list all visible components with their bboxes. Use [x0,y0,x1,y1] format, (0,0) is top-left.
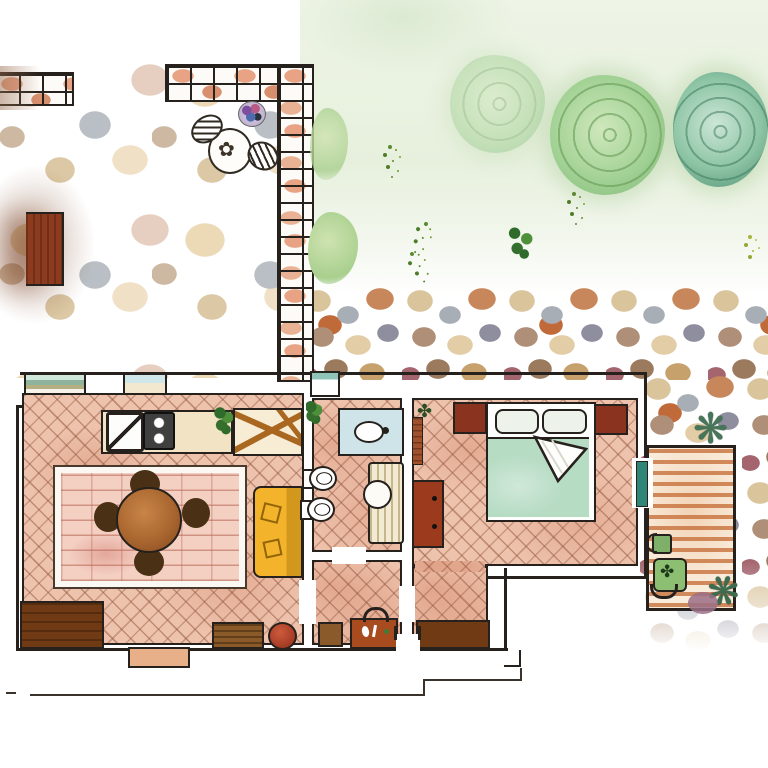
nook-right-outer-wall [504,568,507,650]
sofa-cushion [260,502,282,524]
chair-plant-icon: ✤ [660,564,674,581]
pillow [542,409,587,434]
stone-path [300,285,768,380]
folded-sheet [532,435,588,485]
washbasin-counter [338,408,404,456]
entrance-jamb [394,626,397,640]
bidet-bowl [307,497,335,522]
toilet-bowl [309,466,337,491]
purple-stone [688,592,718,614]
sofa-cushion [262,538,282,558]
chest-mark [361,625,370,637]
step-bracket-h [504,665,521,667]
radiator [412,417,423,465]
potted-plant-kitchen [214,404,234,436]
window-bathroom [310,371,340,397]
dining-chair [182,498,210,528]
bedroom-bottom-outer-wall [488,576,646,579]
dresser-knob [432,496,437,501]
low-bench [212,622,264,649]
entrance-step [128,647,190,668]
trestle-desk [233,408,303,456]
flower-pot [238,101,266,127]
dresser-knob [432,524,437,529]
chest-mark [372,625,377,637]
clay-pot [268,622,297,650]
kitchen-sink [106,412,144,452]
flower-icon: ✿ [218,139,235,159]
porch-line-connector [423,679,425,696]
porch-tick [520,668,522,681]
outer-wall-left [16,406,19,650]
washbasin-bowl [354,421,384,443]
window-living [123,373,167,395]
chest-dot [384,629,389,634]
yellow-sofa [253,486,303,578]
main-entrance [396,634,420,652]
agave-plant-icon: ❋ [693,408,728,450]
dresser [412,480,444,548]
porch-line [30,694,425,696]
round-dining-table [116,487,182,553]
floor-plan-illustration: ✿ [0,0,768,768]
door-bathroom-hallway [332,547,366,564]
storage-cabinet [416,620,490,649]
entrance-jamb [418,626,421,640]
nightstand-left [453,402,487,434]
nightstand-right [594,404,628,435]
toilet [302,466,336,489]
door-bedroom-terrace [636,461,648,507]
wall-fade [0,66,40,110]
garden-bench [26,212,64,286]
shower-basin [363,480,392,509]
grass-tuft [388,145,392,149]
door-hallway-bedroom [399,586,415,622]
door-living-hallway [299,580,316,624]
luggage-chest [350,618,398,649]
garden-wall-right [277,64,314,382]
sideboard [20,601,104,649]
bedroom-nook-join [415,561,485,572]
washbasin-tap [382,427,389,434]
grass-tuft [748,235,752,239]
kitchen-stove [143,412,175,450]
grass-tuft [505,222,537,262]
window-bay-living [24,373,86,395]
pillow [495,409,539,434]
potted-plant-bathroom [306,400,322,424]
bidet [300,497,334,520]
double-bed [486,402,596,522]
porch-dash [6,692,16,694]
porch-line [423,679,522,681]
grass-tuft [572,192,576,196]
stool [318,622,343,647]
chest-handle [363,607,389,622]
